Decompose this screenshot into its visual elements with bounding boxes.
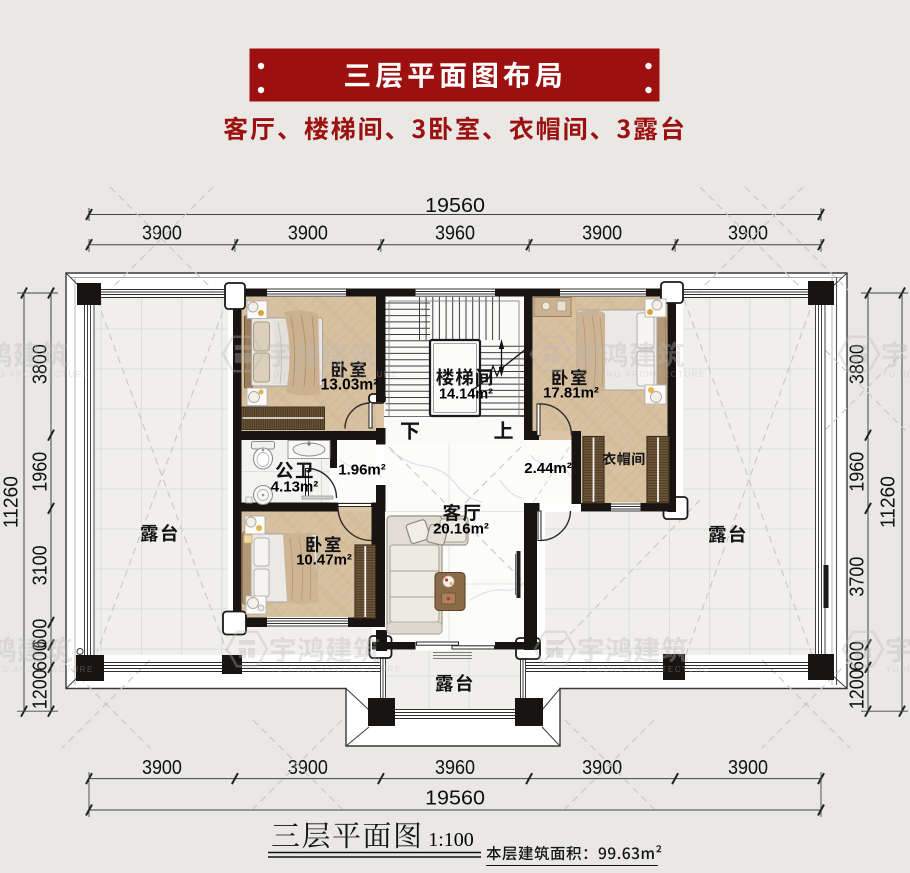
svg-text:YU HONG ARCHITECTURE: YU HONG ARCHITECTURE	[266, 370, 398, 379]
svg-text:19560: 19560	[425, 787, 485, 810]
svg-text:3100: 3100	[28, 545, 51, 585]
svg-text:3900: 3900	[288, 222, 328, 245]
svg-text:1200: 1200	[845, 669, 868, 709]
svg-text:19560: 19560	[425, 194, 485, 217]
svg-text:3700: 3700	[845, 557, 868, 597]
svg-text:20.16m²: 20.16m²	[433, 521, 489, 538]
svg-text:3800: 3800	[845, 344, 868, 384]
svg-text:1:100: 1:100	[428, 829, 474, 851]
svg-text:17.81m²: 17.81m²	[543, 385, 599, 402]
svg-text:3900: 3900	[582, 222, 622, 245]
svg-text:14.14m²: 14.14m²	[439, 387, 493, 403]
svg-text:3900: 3900	[728, 756, 768, 779]
svg-text:3900: 3900	[582, 756, 622, 779]
svg-text:4.13m²: 4.13m²	[271, 479, 319, 496]
svg-text:YU HONG ARCHITECTURE: YU HONG ARCHITECTURE	[578, 665, 710, 674]
svg-text:3960: 3960	[435, 756, 475, 779]
svg-text:3900: 3900	[728, 222, 768, 245]
svg-text:YU HONG ARCHITECTURE: YU HONG ARCHITECTURE	[0, 665, 94, 674]
svg-text:1.96m²: 1.96m²	[338, 462, 386, 479]
svg-text:2.44m²: 2.44m²	[524, 460, 572, 477]
svg-text:1200: 1200	[28, 669, 51, 709]
svg-text:10.47m²: 10.47m²	[296, 552, 352, 569]
svg-text:11260: 11260	[0, 476, 22, 528]
svg-text:1960: 1960	[845, 452, 868, 492]
svg-text:YU HONG ARCHITECTURE: YU HONG ARCHITECTURE	[882, 370, 910, 379]
svg-text:3900: 3900	[142, 756, 182, 779]
svg-text:YU HONG ARCHITECTURE: YU HONG ARCHITECTURE	[574, 370, 706, 379]
svg-text:11260: 11260	[876, 476, 899, 528]
svg-text:YU HONG ARCHITECTURE: YU HONG ARCHITECTURE	[270, 665, 402, 674]
svg-text:3960: 3960	[435, 222, 475, 245]
svg-text:1960: 1960	[28, 452, 51, 492]
svg-text:YU HONG ARCHITECTURE: YU HONG ARCHITECTURE	[0, 370, 90, 379]
svg-text:YU HONG ARCHITECTURE: YU HONG ARCHITECTURE	[886, 665, 910, 674]
svg-text:13.03m²: 13.03m²	[321, 377, 379, 394]
